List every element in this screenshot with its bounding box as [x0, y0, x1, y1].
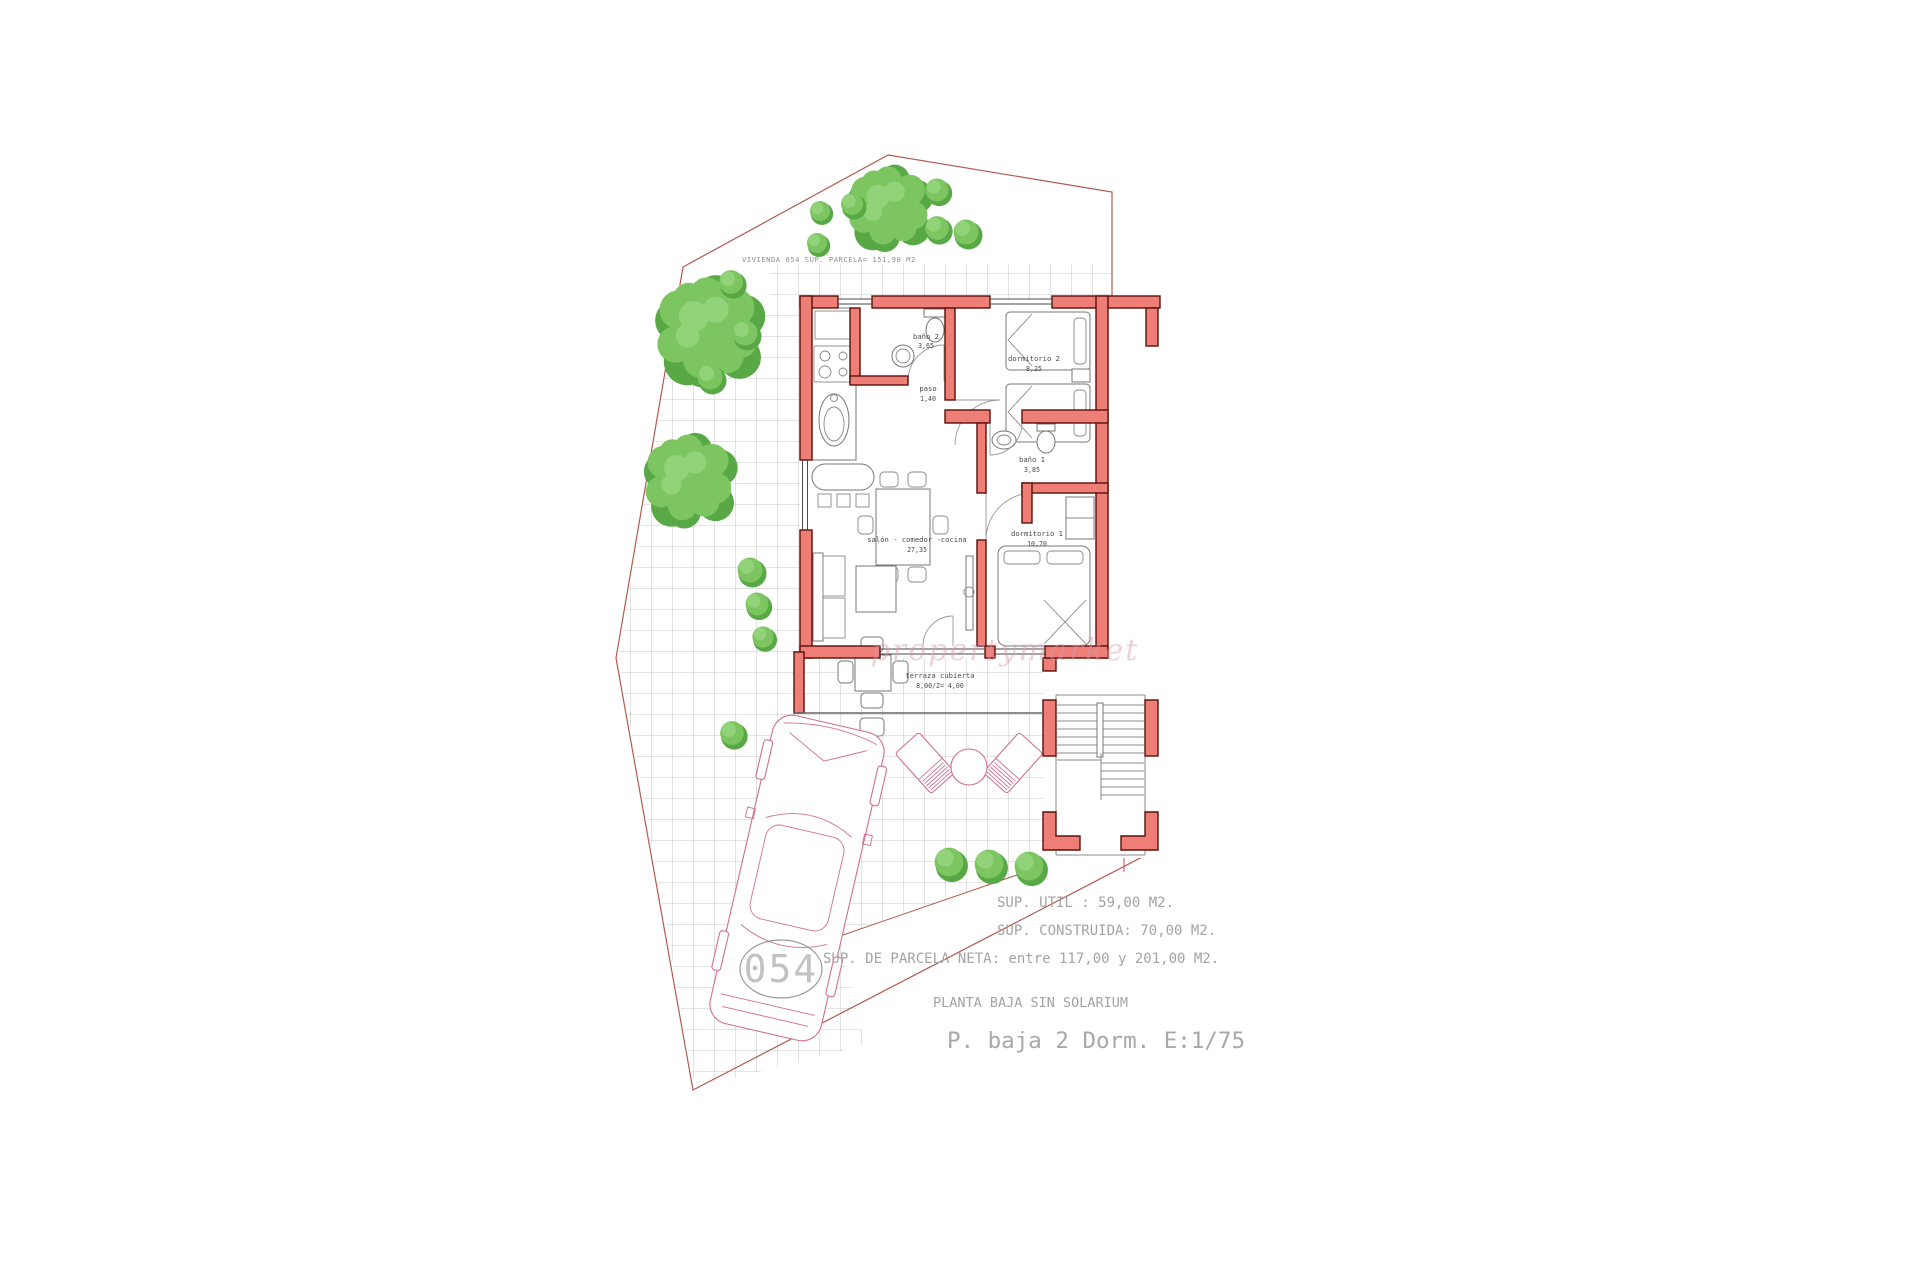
- bush: [807, 233, 830, 257]
- wall-bedroom1-left: [977, 540, 986, 646]
- room-area-bath1: 3,85: [1024, 466, 1040, 474]
- stair-divider: [1097, 703, 1103, 757]
- room-label-bath2: baño 2: [913, 332, 939, 341]
- room-area-bedroom2: 8,25: [1026, 365, 1042, 373]
- floor-plan-drawing: propertymarket baño 2 3,65 paso 1,40 dor…: [0, 0, 1920, 1280]
- bush: [954, 220, 983, 250]
- summary-planta-baja: PLANTA BAJA SIN SOLARIUM: [933, 995, 1128, 1011]
- room-label-paso: paso: [919, 384, 936, 393]
- patio-grid-top: [770, 264, 1112, 300]
- room-area-terrace: 8,00/2= 4,00: [916, 682, 964, 690]
- unit-number: 054: [744, 947, 819, 991]
- wall-right: [1096, 296, 1108, 658]
- bush: [925, 216, 953, 245]
- room-label-bedroom1: dormitorio 1: [1011, 529, 1063, 538]
- wall-bath2-bottom: [850, 376, 908, 385]
- room-label-bath1: baño 1: [1019, 455, 1045, 464]
- stair-pillar: [1145, 700, 1158, 756]
- floor-plan-page: propertymarket baño 2 3,65 paso 1,40 dor…: [0, 0, 1920, 1280]
- wall-left: [800, 296, 812, 460]
- stair-pillar: [1043, 700, 1056, 756]
- terrace-chair: [861, 693, 883, 708]
- wall-party-stub: [1146, 308, 1158, 346]
- garden-round-table: [951, 749, 987, 785]
- room-label-terrace: terraza cubierta: [905, 671, 974, 680]
- wall-kitchen-bath2: [850, 308, 860, 383]
- room-area-bath2: 3,65: [918, 342, 934, 350]
- wall-bottom: [800, 646, 880, 658]
- washbasin: [892, 345, 914, 367]
- summary-parcela-neta: SUP. DE PARCELA NETA: entre 117,00 y 201…: [823, 951, 1219, 967]
- wall-bedroom2-bottom: [1022, 410, 1108, 423]
- toilet-bowl: [1037, 431, 1055, 453]
- tv-unit: [966, 556, 973, 630]
- room-area-bedroom1: 10,70: [1027, 540, 1047, 548]
- summary-sup-construida: SUP. CONSTRUIDA: 70,00 M2.: [997, 923, 1216, 939]
- wall-left: [800, 530, 812, 658]
- wall-bath1-bottom: [1022, 483, 1108, 493]
- room-area-paso: 1,40: [920, 395, 936, 403]
- sofa-back: [813, 553, 823, 641]
- plan-scale-title: P. baja 2 Dorm. E:1/75: [947, 1028, 1245, 1054]
- room-area-living: 27,35: [907, 546, 927, 554]
- wall-bath2-right: [945, 308, 955, 400]
- bush: [810, 201, 833, 225]
- parcel-label: VIVIENDA 054 SUP. PARCELA= 151,90 M2: [742, 255, 916, 264]
- terrace-chair: [838, 661, 853, 683]
- double-bed: [998, 546, 1090, 646]
- room-label-living: salón - comedor -cocina: [867, 535, 967, 544]
- coffee-table: [856, 566, 896, 612]
- wall-top: [872, 296, 990, 308]
- summary-sup-util: SUP. UTIL : 59,00 M2.: [997, 895, 1174, 911]
- watermark-text: propertymarket: [871, 633, 1140, 668]
- wall-bath1-left: [977, 423, 986, 493]
- kitchen-peninsula: [812, 464, 874, 490]
- wall-terrace-stub: [794, 652, 804, 713]
- toilet-tank: [1037, 424, 1055, 431]
- wall-bath1-stub: [1022, 483, 1032, 523]
- room-label-bedroom2: dormitorio 2: [1008, 354, 1060, 363]
- nightstand: [1072, 369, 1090, 382]
- wall-bedroom2-bottom: [945, 410, 990, 423]
- toilet-tank: [924, 309, 946, 317]
